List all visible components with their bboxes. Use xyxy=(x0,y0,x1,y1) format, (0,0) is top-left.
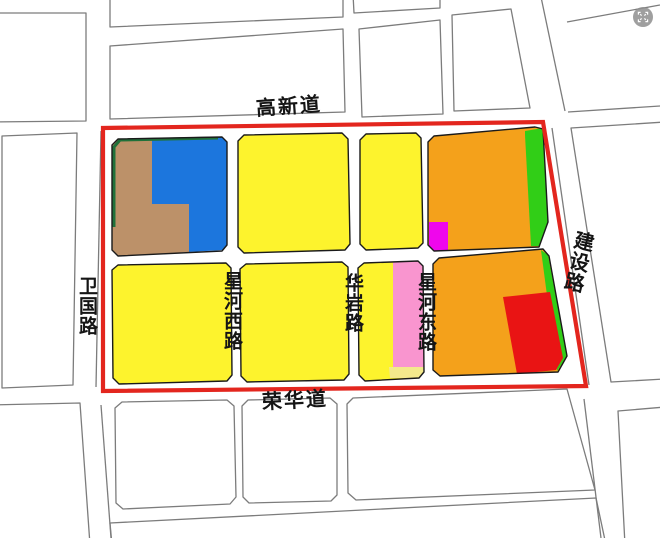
parcel-yellow xyxy=(112,263,232,384)
city-block xyxy=(353,0,440,13)
parcel-block-northwest xyxy=(112,137,227,256)
icon-circle xyxy=(633,7,653,27)
city-block xyxy=(2,133,77,388)
parcel-pale-yellow xyxy=(389,367,424,378)
city-block xyxy=(242,398,337,503)
fullscreen-button[interactable] xyxy=(633,7,653,27)
city-block xyxy=(347,389,595,500)
road-label-xinghe-east-lu: 星河东路 xyxy=(416,272,435,352)
city-block xyxy=(115,400,236,509)
road-edge xyxy=(541,0,565,111)
city-block xyxy=(110,0,343,27)
parcel-yellow xyxy=(240,262,349,382)
road-label-xinghe-west-lu: 星河西路 xyxy=(222,271,241,351)
parcel-yellow xyxy=(238,133,350,253)
land-parcels xyxy=(112,127,567,384)
city-block xyxy=(618,407,660,538)
city-block xyxy=(0,403,90,538)
parcel-block-southeast xyxy=(433,249,567,376)
fullscreen-icon xyxy=(633,7,653,27)
road-label-gaoxin-dao: 高新道 xyxy=(255,95,322,120)
road-edge xyxy=(96,131,101,387)
map-canvas xyxy=(0,0,660,538)
zoning-map: 高新道 荣华道 卫国路 星河西路 华岩路 星河东路 建设路 xyxy=(0,0,660,538)
parcel-magenta xyxy=(429,222,448,251)
road-label-huayan-lu: 华岩路 xyxy=(343,273,362,333)
parcel-yellow xyxy=(360,133,423,250)
road-edge xyxy=(101,405,111,538)
road-edge xyxy=(568,106,660,112)
city-block xyxy=(359,20,443,117)
road-label-ronghua-dao: 荣华道 xyxy=(262,389,329,412)
road-label-weiguo-lu: 卫国路 xyxy=(77,276,96,336)
city-block xyxy=(0,13,86,122)
parcel-block-northeast xyxy=(428,127,548,251)
city-block xyxy=(452,9,530,111)
